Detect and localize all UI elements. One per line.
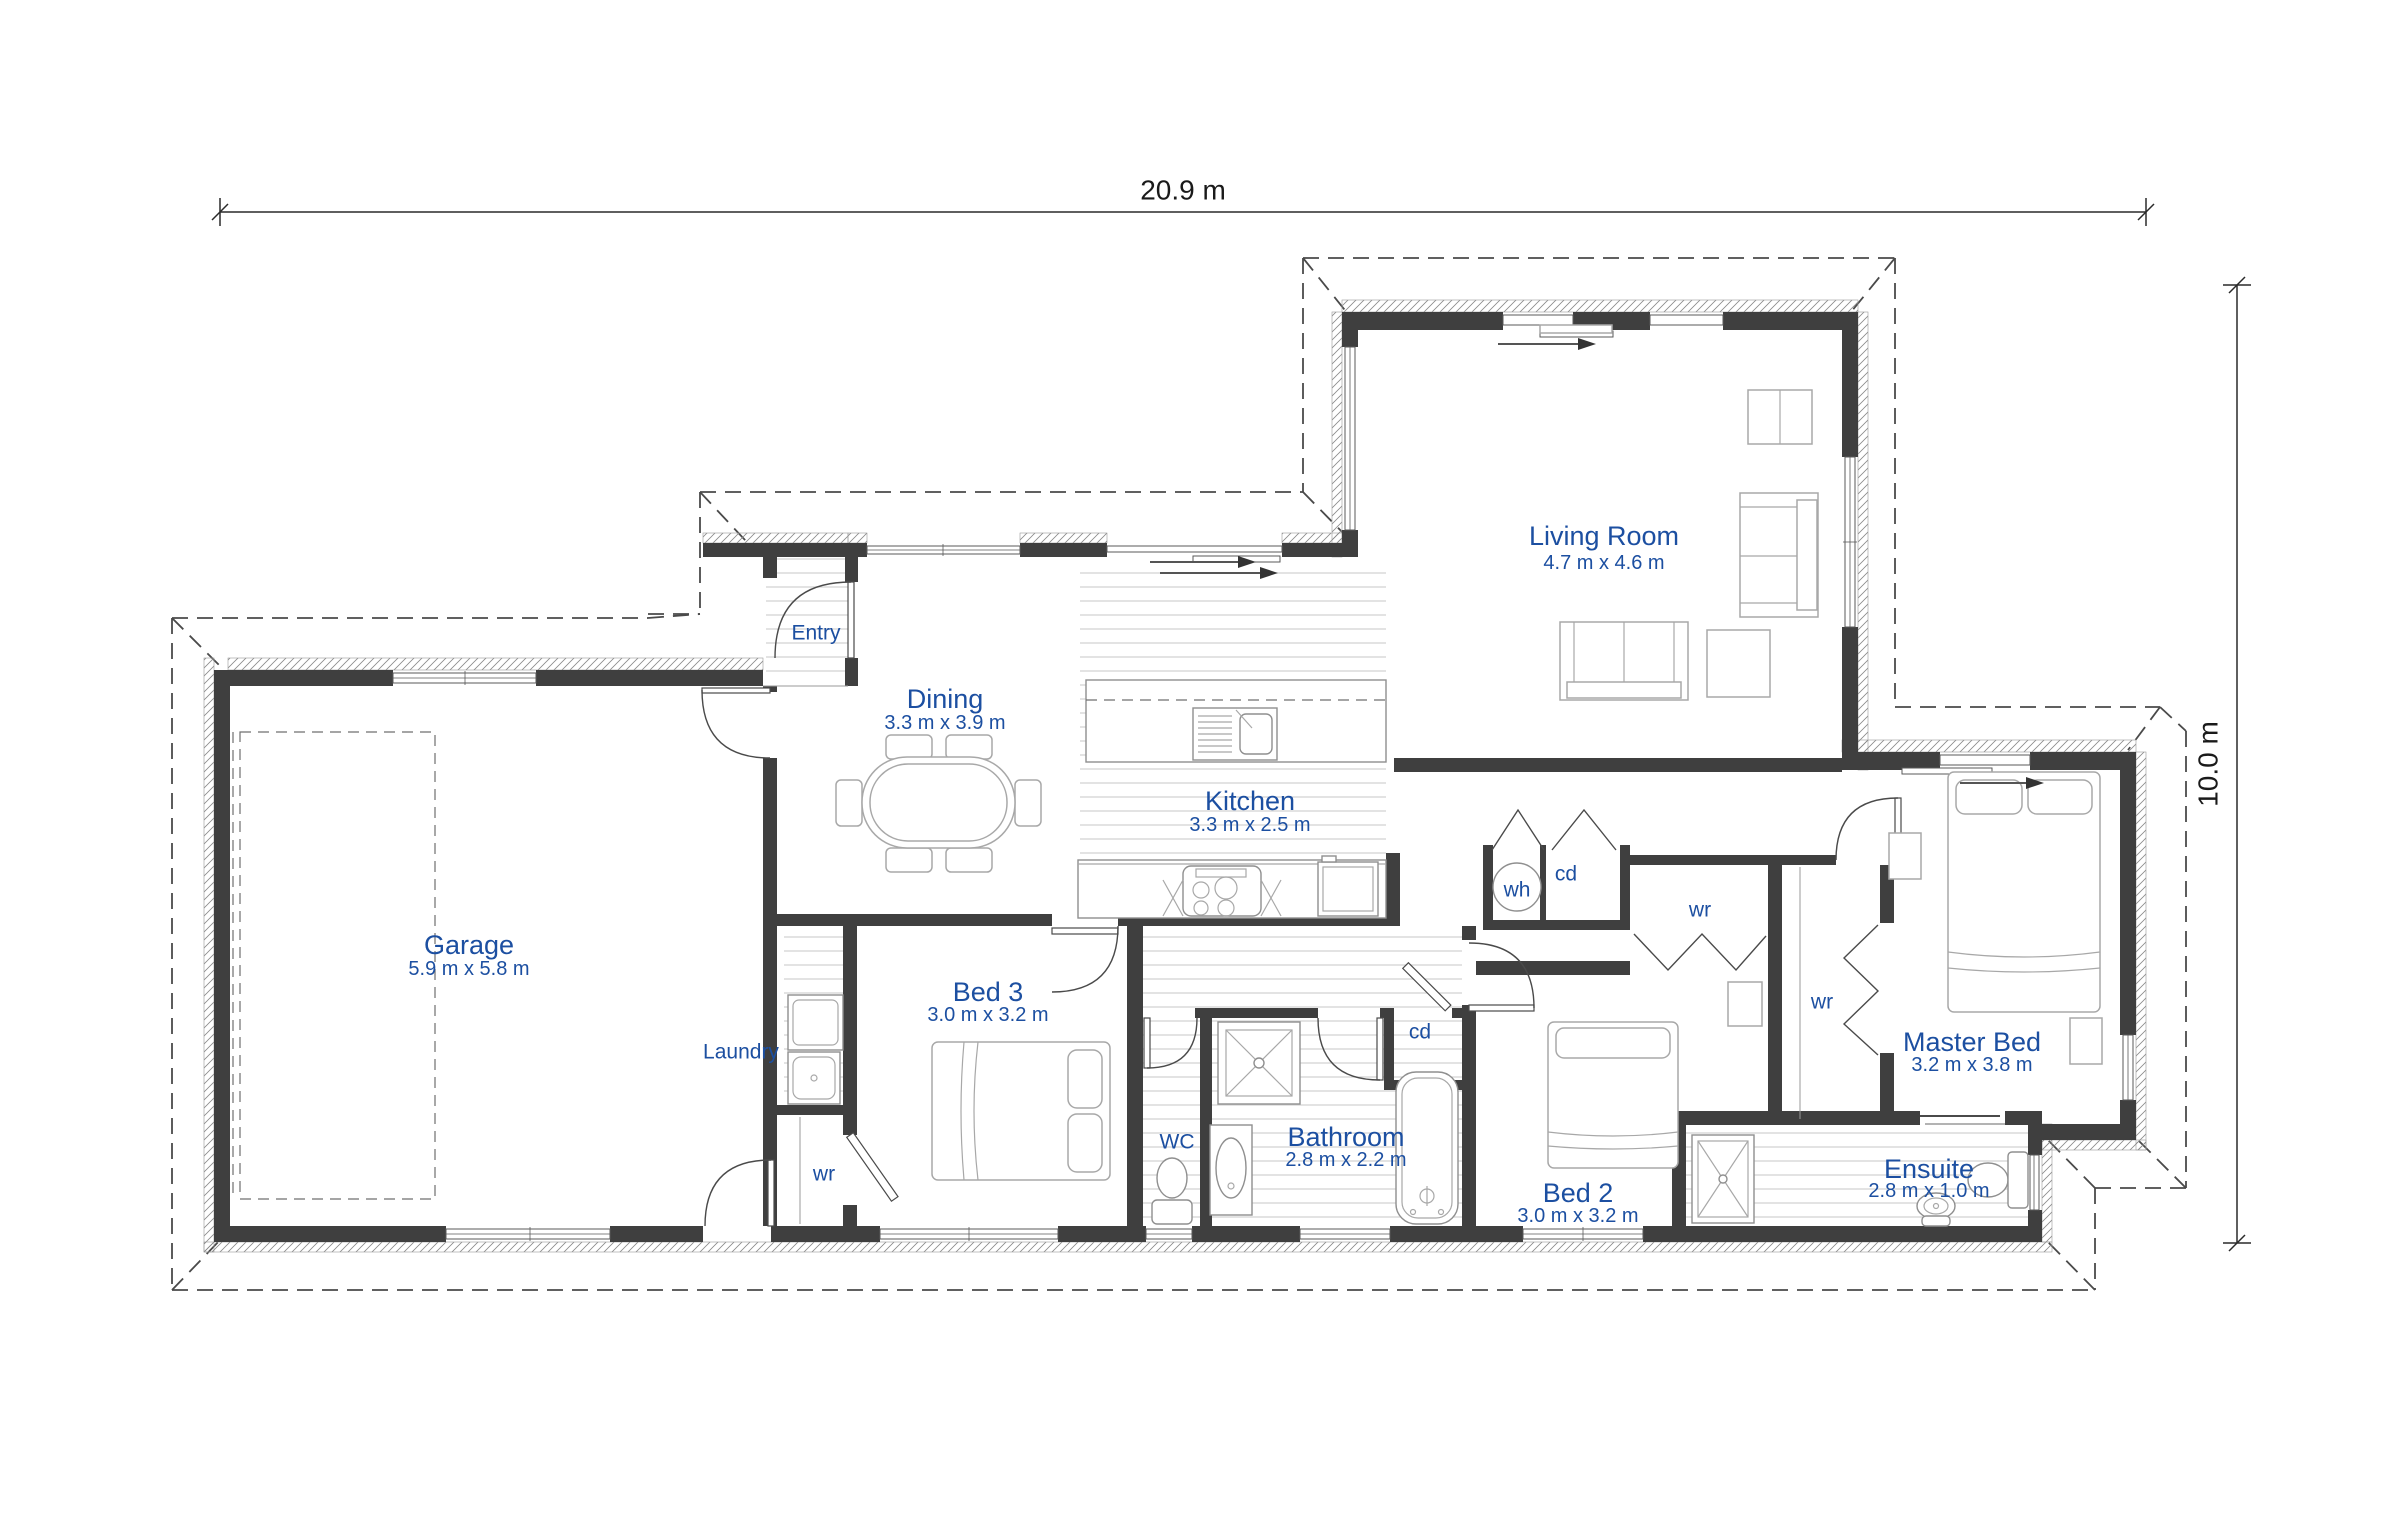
window-living-right <box>1843 457 1857 627</box>
dining-dims: 3.3 m x 3.9 m <box>884 712 1005 734</box>
cd-label: cd <box>1555 863 1577 886</box>
ensuite-slider-door <box>1920 1116 2005 1124</box>
kitchen-island <box>1086 680 1386 762</box>
coffee-table <box>1707 630 1770 697</box>
master-wr-bifold-door <box>1844 925 1878 1055</box>
window-wc-rear <box>1146 1229 1192 1239</box>
garage-ceiling-dashed <box>233 732 435 1199</box>
bed3-label: Bed 3 <box>953 977 1024 1007</box>
window-living-top-2 <box>1650 315 1723 325</box>
dimension-height-label: 10.0 m <box>2193 721 2224 807</box>
bed2-door <box>1469 943 1534 1011</box>
entry-label: Entry <box>791 622 841 645</box>
garage-internal-door <box>702 688 770 758</box>
wh-bifold-door <box>1492 810 1544 850</box>
garage-label: Garage <box>424 930 514 960</box>
wr-bed2-label: wr <box>1688 899 1711 922</box>
window-master-right <box>2123 1035 2133 1100</box>
wr-bed3-label: wr <box>812 1163 835 1186</box>
dimension-width-label: 20.9 m <box>1140 175 1226 206</box>
wc-label: WC <box>1160 1131 1195 1154</box>
window-garage-rear <box>446 1227 610 1241</box>
bathroom-dims: 2.8 m x 2.2 m <box>1285 1149 1406 1171</box>
dining-table <box>836 735 1041 872</box>
kitchen-label: Kitchen <box>1205 786 1295 816</box>
ensuite-dims: 2.8 m x 1.0 m <box>1868 1180 1989 1202</box>
bed3-door <box>1052 926 1118 992</box>
bed2-dims: 3.0 m x 3.2 m <box>1517 1205 1638 1227</box>
bed3-furniture <box>932 1042 1110 1180</box>
kitchen-counter <box>1078 856 1386 918</box>
sofa-small <box>1560 622 1688 700</box>
window-kitchen-slider <box>1107 546 1282 562</box>
living-room-label: Living Room <box>1529 521 1679 551</box>
window-bathroom-rear <box>1300 1229 1390 1239</box>
kitchen-dims: 3.3 m x 2.5 m <box>1189 814 1310 836</box>
bedside-table <box>1728 982 1762 1026</box>
bed3-dims: 3.0 m x 3.2 m <box>927 1004 1048 1026</box>
bathroom-label: Bathroom <box>1287 1122 1404 1152</box>
window-garage-front <box>393 671 536 685</box>
wr-master-label: wr <box>1810 991 1833 1014</box>
arrow-living-window <box>1498 338 1596 350</box>
window-bed2-rear <box>1523 1227 1643 1241</box>
bedside-table <box>1889 833 1921 879</box>
bed3-wr-door <box>847 1133 898 1201</box>
dimension-height: 10.0 m <box>2193 277 2252 1251</box>
floor-plan-drawing: 20.9 m 10.0 m Living Room 4.7 m x 4.6 m … <box>0 0 2400 1514</box>
wall-shelf <box>1540 325 1612 333</box>
sofa-large <box>1740 493 1818 617</box>
dining-label: Dining <box>907 684 984 714</box>
fridge <box>1318 856 1378 916</box>
window-bed3-rear <box>880 1227 1058 1241</box>
living-room-dims: 4.7 m x 4.6 m <box>1543 552 1664 574</box>
bed2-label: Bed 2 <box>1543 1178 1614 1208</box>
floor-plan-page: 20.9 m 10.0 m Living Room 4.7 m x 4.6 m … <box>0 0 2400 1514</box>
bed2-wr-bifold-door <box>1634 934 1766 970</box>
garage-dims: 5.9 m x 5.8 m <box>408 958 529 980</box>
tv-bench <box>1748 390 1812 444</box>
cd-linen-label: cd <box>1409 1021 1431 1044</box>
master-bed-dims: 3.2 m x 3.8 m <box>1911 1054 2032 1076</box>
laundry-label: Laundry <box>703 1041 779 1064</box>
bedside-table <box>2070 1018 2102 1064</box>
wh-label: wh <box>1503 879 1531 902</box>
cd-bifold-door <box>1552 810 1616 850</box>
window-ensuite-right <box>2030 1155 2039 1210</box>
furniture <box>788 325 2102 1226</box>
dimension-width: 20.9 m <box>212 175 2154 227</box>
master-bed-label: Master Bed <box>1903 1027 2041 1057</box>
window-living-left <box>1345 347 1355 530</box>
window-dining-front <box>867 544 1020 556</box>
